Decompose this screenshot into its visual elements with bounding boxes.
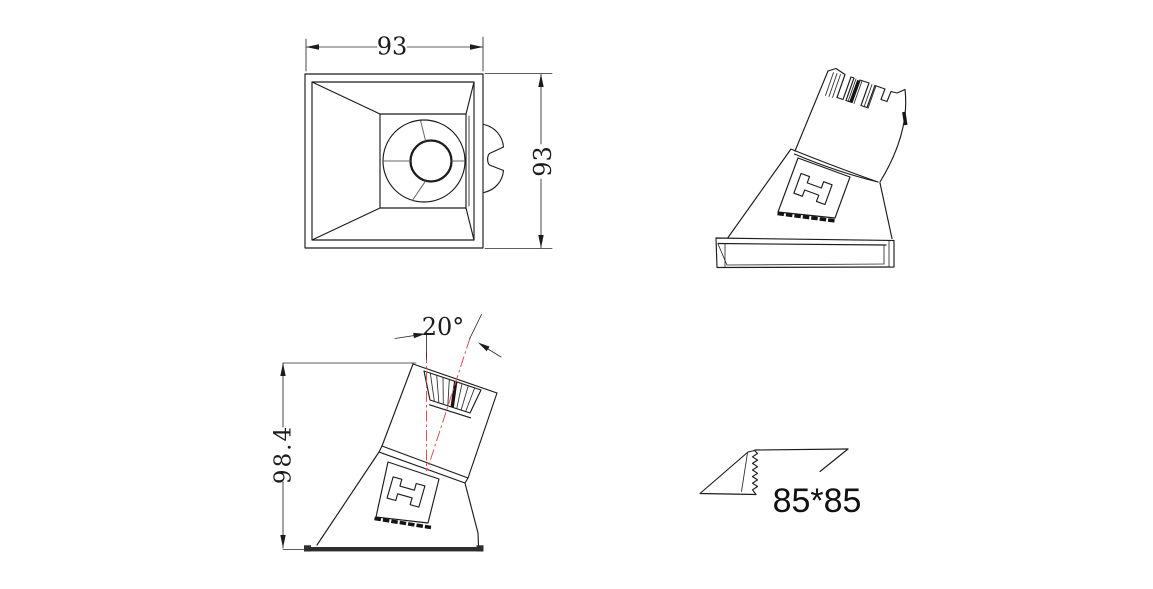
dimension-top-height: 93 <box>485 74 557 249</box>
side-connector-panel <box>375 462 440 528</box>
top-view-outline <box>305 74 504 248</box>
cutout-wedge <box>700 451 758 495</box>
top-view: 93 93 <box>305 33 557 249</box>
iso-h-slot <box>794 173 832 204</box>
dim-cutout-size-label: 85*85 <box>773 482 862 520</box>
side-h-slot <box>387 477 425 507</box>
dim-width-label: 93 <box>377 33 408 61</box>
side-view: 20° 98.4 <box>271 313 502 552</box>
dim-side-height-label: 98.4 <box>271 425 297 484</box>
dimension-tilt-angle: 20° <box>395 313 501 359</box>
lens-circle <box>411 141 452 182</box>
iso-flange <box>716 238 894 268</box>
dim-angle-label: 20° <box>422 313 465 341</box>
iso-body <box>728 69 906 239</box>
drawing-sheet: 93 93 <box>0 0 1153 589</box>
cutout-symbol: 85*85 <box>700 449 861 520</box>
dim-height-label: 93 <box>529 146 557 177</box>
technical-drawing-canvas: 93 93 <box>0 0 1153 589</box>
side-base-plate <box>305 547 483 551</box>
dimension-top-width: 93 <box>306 33 483 72</box>
iso-view <box>716 69 906 268</box>
spring-clip <box>484 125 504 193</box>
iso-heatsink-crown <box>828 69 905 108</box>
